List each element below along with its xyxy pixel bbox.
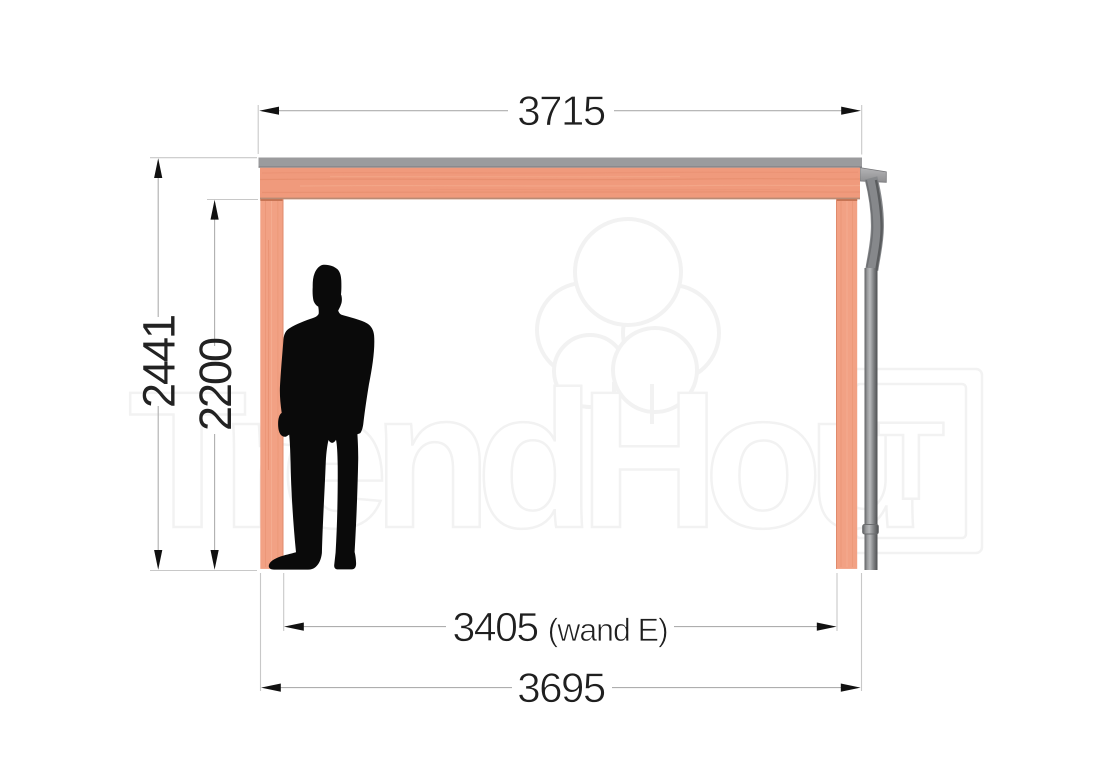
svg-text:3715: 3715 [517,87,605,134]
svg-text:T: T [877,400,944,523]
svg-text:TrendHou: TrendHou [128,351,914,569]
svg-text:3695: 3695 [517,664,605,711]
svg-text:2200: 2200 [190,338,241,431]
svg-text:2441: 2441 [134,316,185,408]
